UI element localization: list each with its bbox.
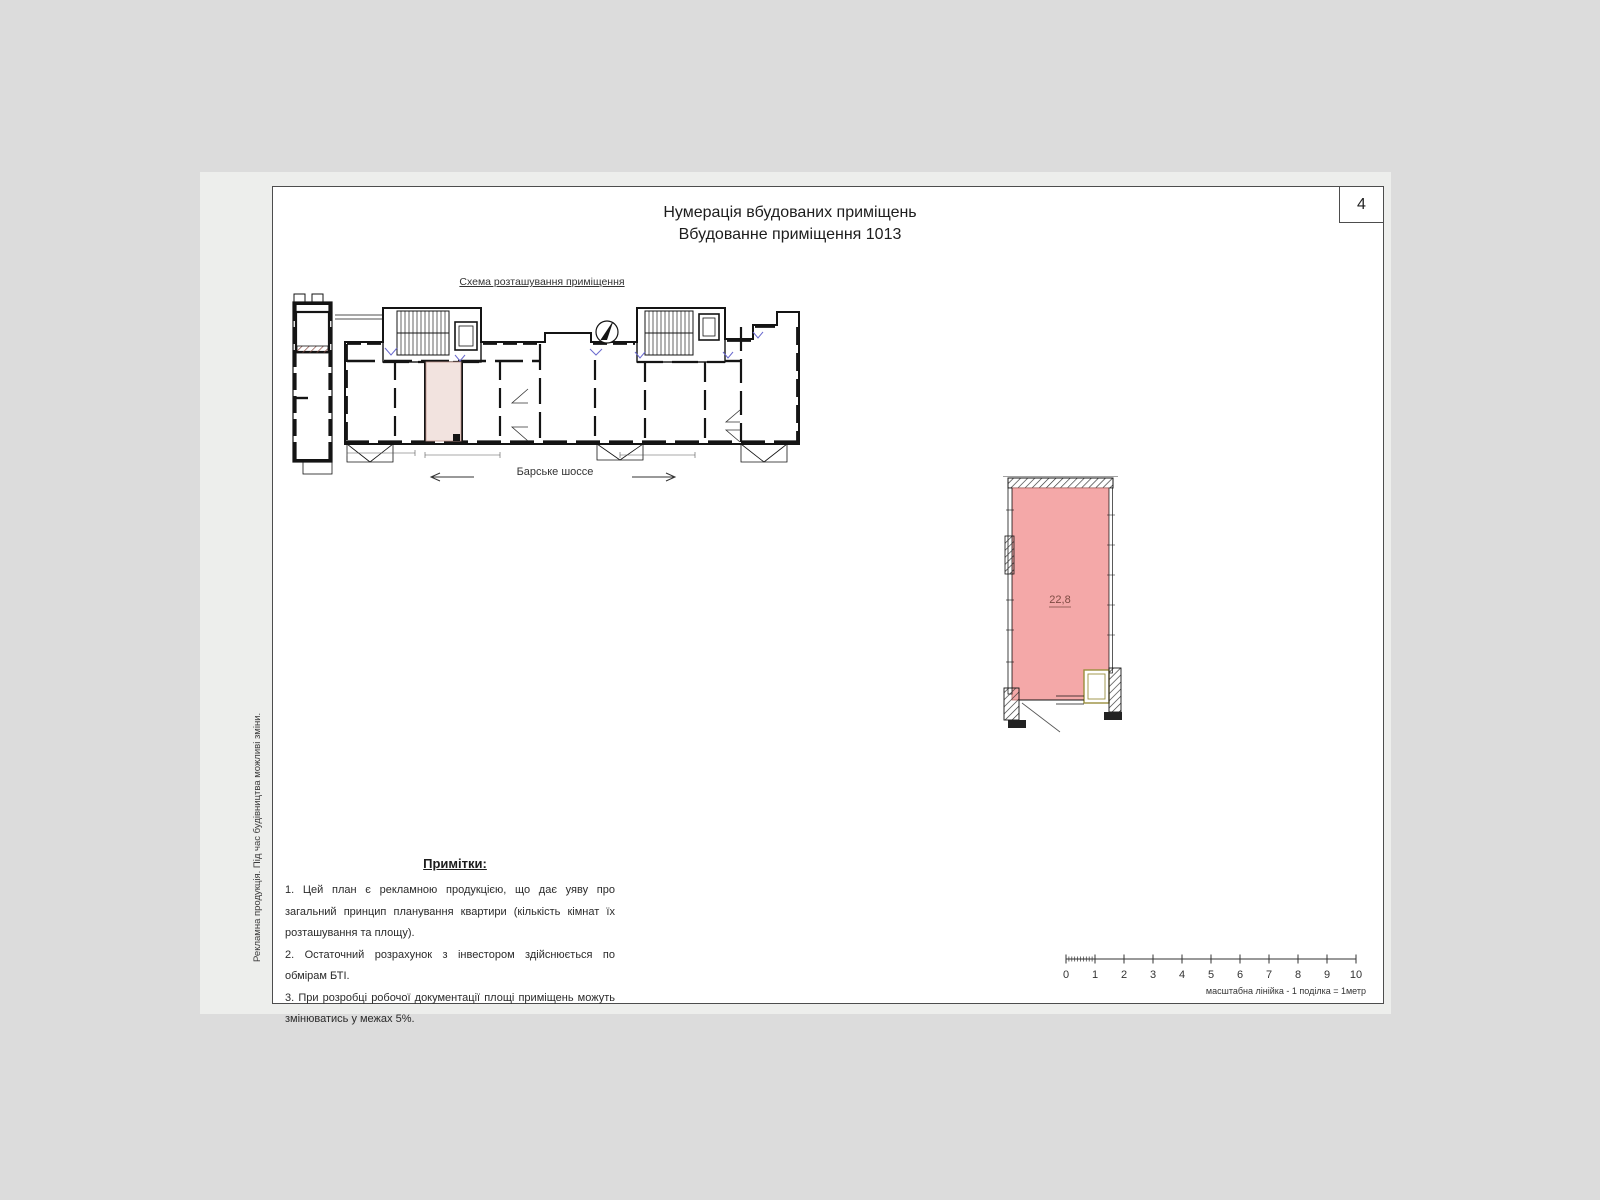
door-swing [1022,703,1060,732]
svg-text:6: 6 [1237,969,1243,981]
sheet-title: Нумерація вбудованих приміщень Вбудованн… [590,202,990,246]
svg-text:8: 8 [1295,969,1301,981]
scale-bar-caption: масштабна лінійка - 1 поділка = 1метр [1100,986,1366,996]
page-number-box: 4 [1339,186,1384,223]
svg-text:7: 7 [1266,969,1272,981]
note-item: 1. Цей план є рекламною продукцією, що д… [285,880,615,945]
note-item: 3. При розробці робочої документації пло… [285,988,615,1031]
unit-1013-plan: 22,8 [1000,470,1125,740]
street-direction-right-arrow-icon [630,470,680,484]
left-building-block [293,294,332,474]
north-arrow-icon [596,321,618,343]
building-location-plan [285,292,807,478]
svg-text:9: 9 [1324,969,1330,981]
svg-text:1: 1 [1092,969,1098,981]
scheme-highlighted-unit [426,362,461,441]
svg-text:0: 0 [1063,969,1069,981]
svg-text:2: 2 [1121,969,1127,981]
side-disclaimer: Рекламна продукція. Під час будівництва … [252,722,263,962]
notes-heading: Примітки: [355,856,555,871]
sheet-title-line2: Вбудованне приміщення 1013 [590,224,990,246]
notes-list: 1. Цей план є рекламною продукцією, що д… [285,880,615,1031]
note-item: 2. Остаточний розрахунок з інвестором зд… [285,945,615,988]
location-scheme-label: Схема розташування приміщення [432,276,652,288]
svg-text:4: 4 [1179,969,1185,981]
scale-bar: 012345678910 [1052,950,1372,986]
top-wall [1008,478,1113,488]
page-number: 4 [1357,196,1366,214]
street-direction-left-arrow-icon [426,470,476,484]
sheet-title-line1: Нумерація вбудованих приміщень [590,202,990,224]
svg-text:5: 5 [1208,969,1214,981]
street-name: Барське шоссе [495,466,615,478]
svg-text:3: 3 [1150,969,1156,981]
drawing-sheet: 4 Нумерація вбудованих приміщень Вбудова… [0,0,1600,1200]
unit-area-value: 22,8 [1049,594,1070,606]
svg-text:10: 10 [1350,969,1362,981]
left-window-block [1005,536,1014,574]
